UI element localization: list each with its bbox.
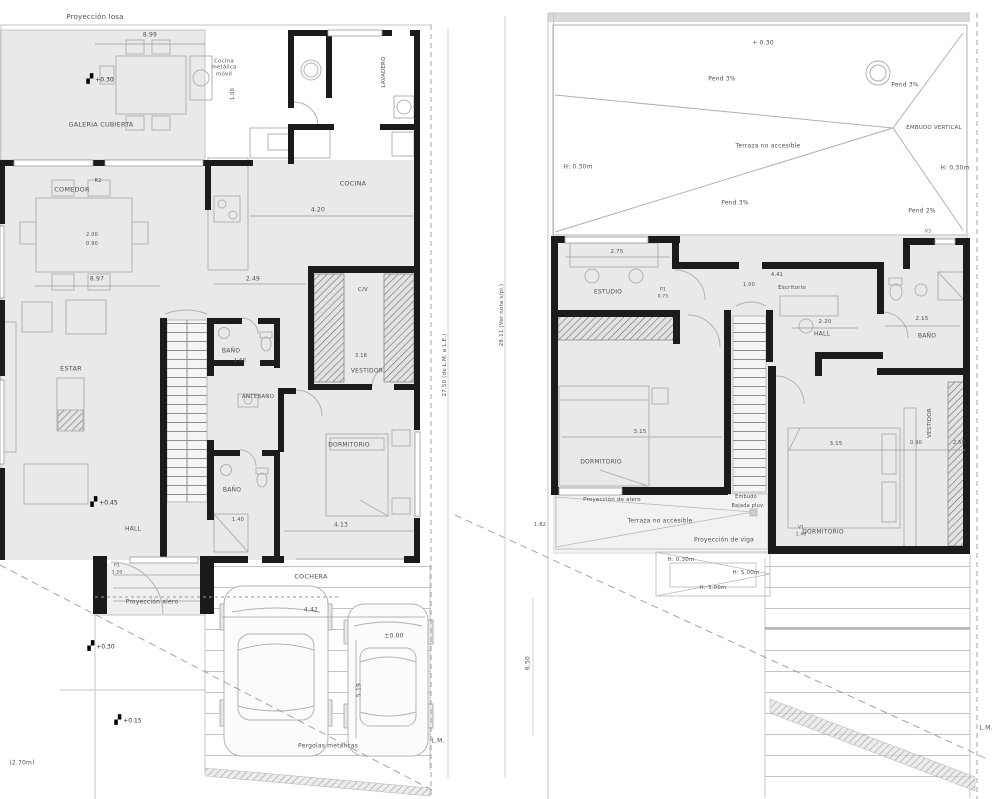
fridge [392, 132, 414, 156]
tv-icon [58, 410, 83, 431]
door-arc [294, 102, 318, 126]
roof-terrace [553, 25, 967, 235]
floor-plan-drawing [0, 0, 998, 799]
room-fills [0, 13, 970, 615]
floor-plan-page: Proyección losa8.99Cocina metálica móvil… [0, 0, 998, 799]
car-top-view [220, 586, 433, 756]
